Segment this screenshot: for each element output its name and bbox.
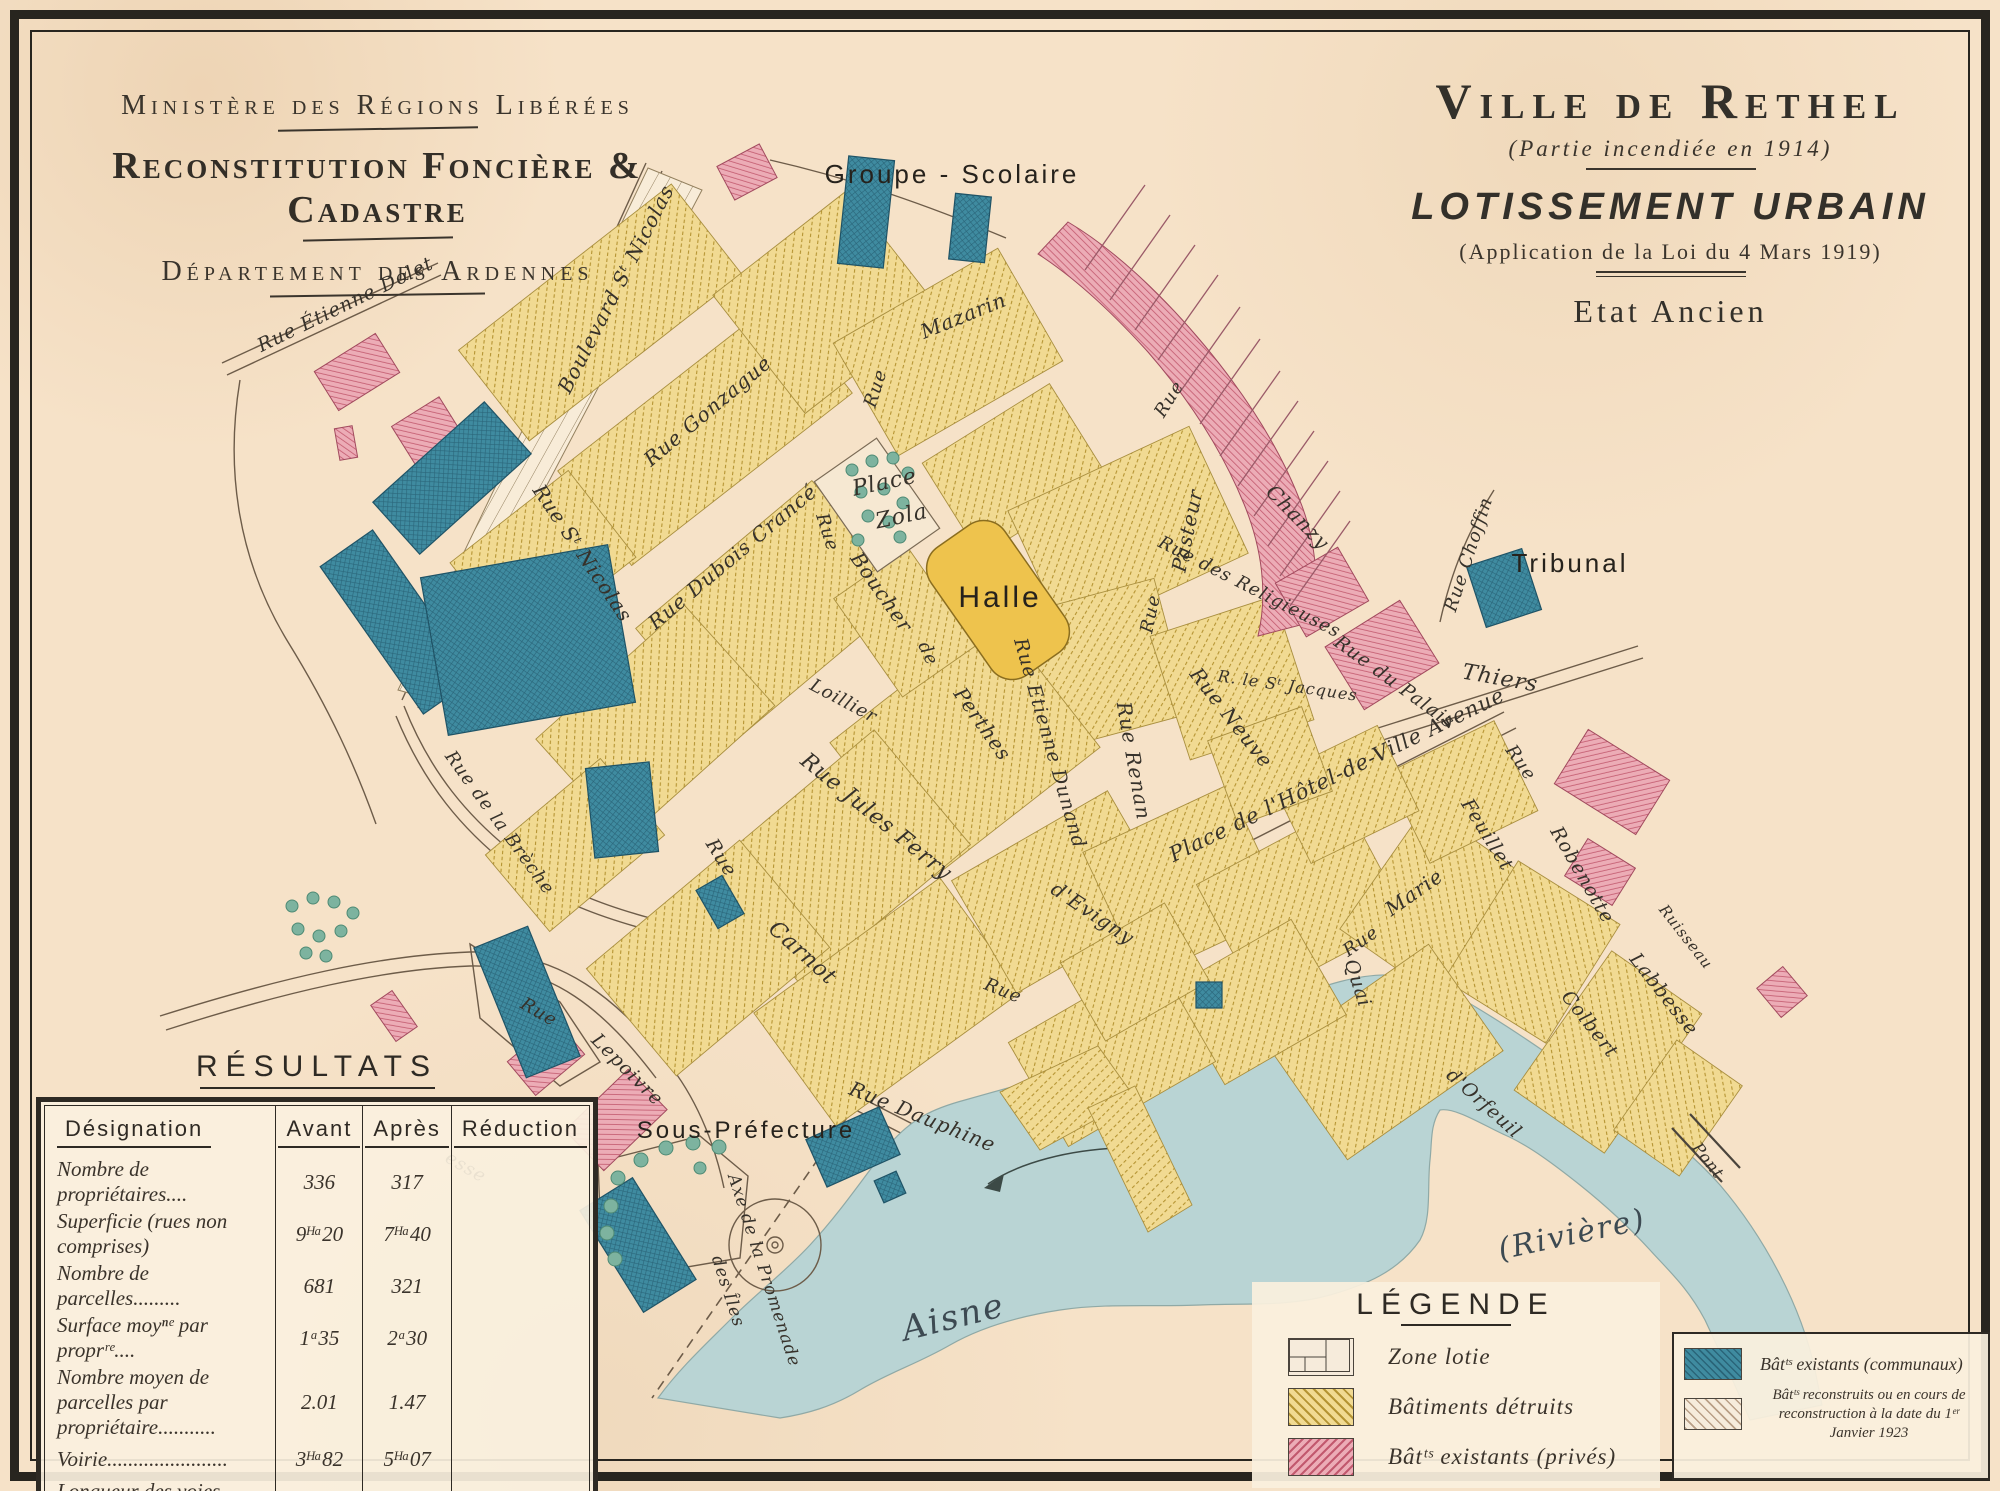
legend-label: Bâtᵗˢ reconstruits ou en cours de recons…: [1760, 1386, 1978, 1442]
zone-lotie-swatch: [1288, 1338, 1354, 1376]
table-row: Surface moyⁿᵉ par proprʳᵉ.... 1ᵃ35 2ᵃ30: [45, 1312, 590, 1364]
legend-label: Bâtᵗˢ existants (communaux): [1760, 1354, 1963, 1375]
private-building: [314, 333, 399, 410]
private-building: [717, 144, 777, 200]
cell-label: Longueur des voies créées....: [45, 1478, 276, 1491]
destroyed-swatch: [1288, 1388, 1354, 1426]
results-panel: RÉSULTATS Désignation Avant Après Réduct…: [36, 1050, 598, 1491]
communal-building: [1196, 982, 1222, 1008]
col-header-apres: Après: [363, 1106, 451, 1157]
cell-reduction: [451, 1478, 589, 1491]
cell-reduction: [451, 1260, 589, 1312]
legend-item-batiments-detruits: Bâtiments détruits: [1288, 1388, 1660, 1426]
map-sheet: Groupe - Scolaire Tribunal Halle Place Z…: [0, 0, 2000, 1491]
legend-right-panel: Bâtᵗˢ existants (communaux) Bâtᵗˢ recons…: [1672, 1332, 1990, 1480]
cell-apres: 321: [363, 1260, 451, 1312]
cell-reduction: [451, 1156, 589, 1208]
cell-reduction: [451, 1364, 589, 1441]
departement-title: Département des Ardennes: [105, 256, 650, 288]
legend-item-zone-lotie: Zone lotie: [1288, 1338, 1660, 1376]
street-label-ruisseau: Ruisseau: [1655, 900, 1717, 972]
cell-avant: 336: [276, 1156, 363, 1208]
title-rule: [302, 236, 452, 241]
legend-label: Zone lotie: [1388, 1344, 1491, 1370]
results-title-rule: [200, 1087, 435, 1089]
cell-reduction: [451, 1312, 589, 1364]
cell-label: Superficie (rues non comprises): [45, 1208, 276, 1260]
city-title: Ville de Rethel: [1398, 72, 1943, 130]
city-subtitle: (Partie incendiée en 1914): [1398, 136, 1943, 162]
ministry-title: Ministère des Régions Libérées: [105, 90, 650, 122]
cell-apres: 5ᴴᵃ07: [363, 1441, 451, 1478]
title-rule: [277, 126, 477, 131]
street-label-des-iles: des Îles: [707, 1253, 750, 1330]
cell-label: Nombre moyen de parcelles par propriétai…: [45, 1364, 276, 1441]
communal-swatch: [1684, 1348, 1742, 1380]
law-subtitle: (Application de la Loi du 4 Mars 1919): [1398, 239, 1943, 265]
cell-apres: 2 Km.: [363, 1478, 451, 1491]
private-building: [334, 426, 357, 461]
private-building: [1757, 967, 1807, 1018]
poi-label-groupe-scolaire: Groupe - Scolaire: [825, 159, 1080, 189]
communal-building-groupe-scolaire: [949, 193, 992, 262]
table-row: Nombre moyen de parcelles par propriétai…: [45, 1364, 590, 1441]
table-row: Longueur des voies créées.... 2 Km.: [45, 1478, 590, 1491]
poi-label-halle: Halle: [958, 581, 1041, 614]
results-table: Désignation Avant Après Réduction Nombre…: [44, 1105, 590, 1491]
legend-label: Bâtᵗˢ existants (privés): [1388, 1444, 1616, 1470]
poi-label-tribunal: Tribunal: [1512, 548, 1629, 578]
col-header-avant: Avant: [276, 1106, 363, 1157]
cell-label: Nombre de parcelles.........: [45, 1260, 276, 1312]
title-block-left: Ministère des Régions Libérées Reconstit…: [105, 90, 650, 296]
cell-apres: 7ᴴᵃ40: [363, 1208, 451, 1260]
legend-item-existants-prives: Bâtᵗˢ existants (privés): [1288, 1438, 1660, 1476]
cell-apres: 1.47: [363, 1364, 451, 1441]
legend-item-existants-communaux: Bâtᵗˢ existants (communaux): [1684, 1348, 1978, 1380]
legend-title-rule: [1401, 1324, 1511, 1326]
cell-apres: 2ᵃ30: [363, 1312, 451, 1364]
cell-label: Surface moyⁿᵉ par proprʳᵉ....: [45, 1312, 276, 1364]
communal-building: [585, 762, 658, 858]
street-label-loillier: Loillier: [806, 674, 882, 728]
poi-label-sous-prefecture: Sous-Préfecture: [637, 1117, 855, 1144]
zone-lotie-parcels-icon: [1289, 1339, 1350, 1372]
river-label-riviere: (Rivière): [1495, 1202, 1649, 1267]
title-rule: [1596, 271, 1746, 277]
col-header-designation: Désignation: [45, 1106, 276, 1157]
legend-panel: LÉGENDE Zone lotie Bâtiments détruits Bâ…: [1252, 1282, 1660, 1488]
table-row: Voirie....................... 3ᴴᵃ82 5ᴴᵃ0…: [45, 1441, 590, 1478]
cell-reduction: [451, 1441, 589, 1478]
legend-label: Bâtiments détruits: [1388, 1394, 1574, 1420]
results-title: RÉSULTATS: [36, 1050, 598, 1084]
legend-item-reconstruits: Bâtᵗˢ reconstruits ou en cours de recons…: [1684, 1386, 1978, 1442]
legend-title: LÉGENDE: [1252, 1288, 1660, 1322]
title-block-right: Ville de Rethel (Partie incendiée en 191…: [1398, 72, 1943, 330]
reconstitution-title: Reconstitution Foncière & Cadastre: [105, 144, 650, 232]
col-header-reduction: Réduction: [451, 1106, 589, 1157]
cell-label: Nombre de propriétaires....: [45, 1156, 276, 1208]
table-row: Nombre de propriétaires.... 336 317: [45, 1156, 590, 1208]
table-row: Nombre de parcelles......... 681 321: [45, 1260, 590, 1312]
state-title: Etat Ancien: [1398, 293, 1943, 330]
results-table-frame: Désignation Avant Après Réduction Nombre…: [36, 1097, 598, 1491]
lotissement-title: LOTISSEMENT URBAIN: [1398, 186, 1943, 229]
table-row: Superficie (rues non comprises) 9ᴴᵃ20 7ᴴ…: [45, 1208, 590, 1260]
cell-avant: 1ᵃ35: [276, 1312, 363, 1364]
cell-reduction: [451, 1208, 589, 1260]
private-swatch: [1288, 1438, 1354, 1476]
cell-apres: 317: [363, 1156, 451, 1208]
title-rule: [1586, 168, 1756, 170]
cell-avant: [276, 1478, 363, 1491]
cell-avant: 681: [276, 1260, 363, 1312]
private-building: [1554, 729, 1669, 834]
reconstructed-swatch: [1684, 1398, 1742, 1430]
cell-label: Voirie.......................: [45, 1441, 276, 1478]
table-header-row: Désignation Avant Après Réduction: [45, 1106, 590, 1157]
cell-avant: 3ᴴᵃ82: [276, 1441, 363, 1478]
cell-avant: 2.01: [276, 1364, 363, 1441]
private-building: [371, 991, 418, 1042]
cell-avant: 9ᴴᵃ20: [276, 1208, 363, 1260]
